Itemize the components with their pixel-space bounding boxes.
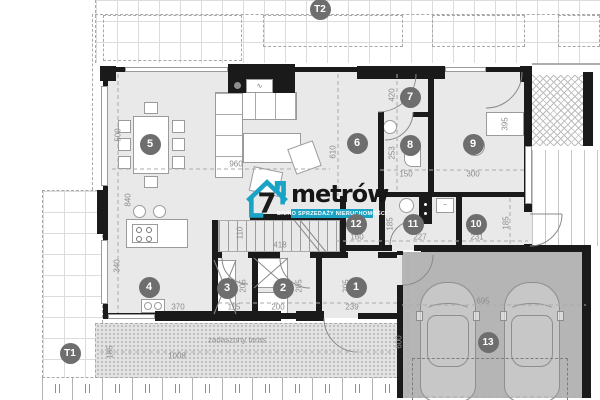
wall [212,220,218,318]
dimension-label: 110 [236,227,245,240]
wc-washbasin [383,120,397,134]
dimension-label: 253 [388,146,397,159]
dining-chair [172,120,185,133]
wall [456,196,462,245]
dimension-label: 150 [399,170,412,179]
room-marker-9: 9 [463,134,484,155]
room-marker-5: 5 [140,134,161,155]
floor-plan: ~ ∿ [0,0,600,400]
dimension-label: 420 [388,88,397,101]
garage-stall-marking [412,358,568,400]
wall [428,66,434,196]
dimension-label: 370 [171,303,184,312]
room-marker-11: 11 [403,214,424,235]
window [101,86,108,186]
kitchen-stool [153,205,166,218]
window [525,146,532,204]
wall [378,252,397,258]
dining-chair [172,138,185,151]
dimension-label: 185 [502,216,511,229]
car-mirror [473,311,480,321]
dimension-label: 115 [228,303,241,312]
laundry-dot [424,203,427,206]
wall [155,311,281,321]
sink-basin [154,302,162,310]
roof-window-outline [432,15,525,47]
burner [146,227,152,233]
wall [397,285,403,318]
dimension-label: 418 [273,241,286,250]
fireplace-dot [234,82,241,89]
wall [340,245,392,251]
window [445,67,486,72]
wall [397,251,403,255]
right-paving-dashes [532,150,600,246]
wall [413,112,428,117]
dimension-label: 300 [466,170,479,179]
dimension-label: 205 [295,279,304,292]
dimension-label: 960 [229,160,242,169]
roof-window-outline [558,15,600,47]
water-heater: ~ [436,198,454,213]
wall [414,245,421,251]
roof-window-outline [103,15,242,61]
right-terrace-hatched [532,75,583,146]
dimension-label: 840 [124,193,133,206]
room-marker-2: 2 [273,278,294,299]
sink-basin [144,302,152,310]
wall [212,252,222,258]
room-marker-13: 13 [478,332,499,353]
door-opening [524,212,532,244]
burner [146,236,152,242]
wall [376,192,532,197]
wall [397,318,403,398]
terrace-pillar [583,72,593,146]
room-marker-10: 10 [466,214,487,235]
dimension-label: 500 [114,128,123,141]
dining-chair [144,176,158,188]
room-marker-T1: T1 [60,343,81,364]
window [108,314,155,319]
dining-chair [118,156,131,169]
garage-front-wall [421,245,591,252]
room-marker-4: 4 [139,277,160,298]
car-mirror [557,311,564,321]
dimension-label: 340 [113,259,122,272]
dimension-label: 185 [106,345,115,358]
covered-terrace [95,323,402,378]
dimension-label: 205 [239,279,248,292]
bottom-fence-line [42,378,402,400]
burner [136,227,142,233]
dimension-label: 395 [501,117,510,130]
logo-brand-name: metrów [291,180,388,208]
dimension-label: 200 [271,303,284,312]
wall [252,258,258,318]
wall [97,190,108,234]
wall [316,258,322,318]
window [125,67,228,72]
room-marker-7: 7 [400,87,421,108]
dining-chair [172,156,185,169]
dimension-label: 610 [329,145,338,158]
fireplace-insert: ∿ [246,79,273,93]
dimension-label: 695 [476,297,489,306]
covered-terrace-label: zadaszony taras [208,336,266,345]
burner [136,236,142,242]
car-mirror [416,311,423,321]
dimension-label: 600 [395,335,404,348]
room-marker-12: 12 [346,214,367,235]
car-mirror [500,311,507,321]
dimension-label: 185 [386,217,395,230]
room-marker-6: 6 [347,133,368,154]
roof-edge-line [532,63,600,65]
bath-washbasin [399,198,414,213]
room-marker-8: 8 [400,135,421,156]
room-marker-3: 3 [217,278,238,299]
garage-side-wall [582,252,591,398]
room-marker-1: 1 [346,277,367,298]
roof-window-outline [263,15,403,47]
dining-chair [144,102,158,114]
dimension-label: 239 [345,303,358,312]
window [101,240,108,304]
room-marker-T2: T2 [310,0,331,20]
roof-outline-dashed-left [92,14,93,190]
laundry-dot [424,212,427,215]
kitchen-stool [133,205,146,218]
dimension-label: 1008 [168,352,186,361]
